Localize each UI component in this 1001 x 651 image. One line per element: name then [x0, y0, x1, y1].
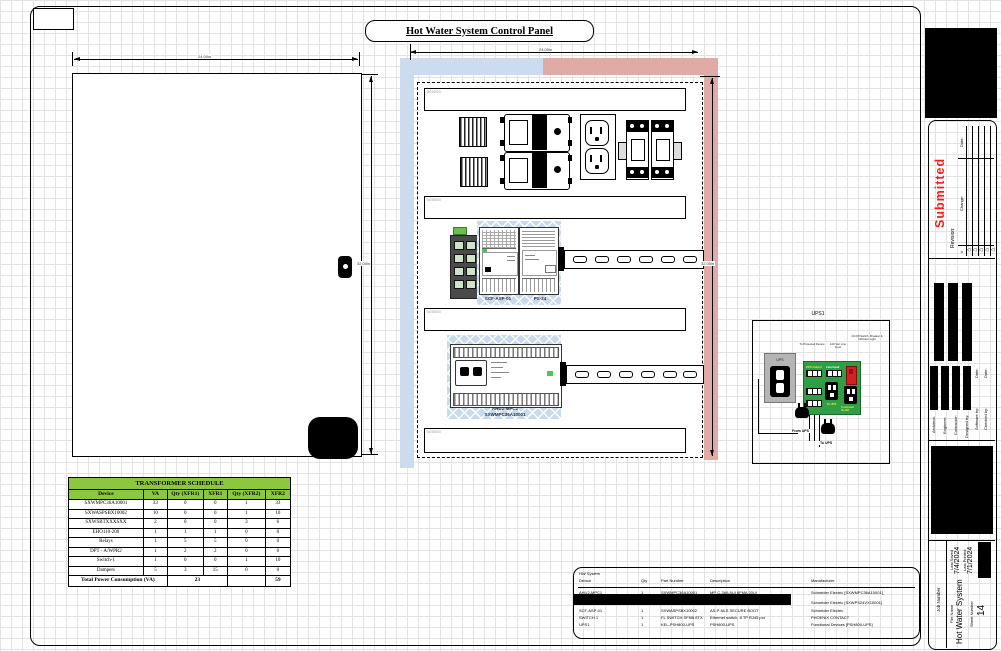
date-label: Date:	[974, 366, 981, 380]
outlet-slot	[828, 385, 832, 390]
cell: 15	[203, 566, 227, 576]
cell: 2	[203, 547, 227, 557]
redaction-bar	[930, 366, 938, 410]
total-label: Total Power Consumption (VA)	[69, 576, 168, 586]
breaker-pole	[651, 120, 674, 180]
outlet-ground	[595, 137, 599, 141]
breaker-screw	[655, 170, 659, 174]
board-computer-outlet	[844, 386, 857, 404]
device-marking	[507, 260, 515, 261]
device-terminal-block	[482, 278, 516, 292]
table-row: Dampers531500	[69, 566, 291, 576]
contractor-label: Contractor:	[953, 412, 960, 438]
cell: 2	[143, 519, 167, 529]
device-marking	[491, 377, 501, 378]
breaker-screw	[665, 124, 669, 128]
dimension-arrow-icon	[410, 50, 416, 54]
redaction-bar	[962, 283, 972, 361]
bom-col-qty: Qty	[641, 579, 661, 584]
transformer-label-plate	[509, 158, 528, 183]
redaction-bar	[934, 283, 944, 361]
breaker-terminal-bottom	[652, 167, 673, 178]
wireway-duct: 000000	[424, 196, 686, 219]
bom-cell: 1	[641, 609, 661, 614]
breaker-pole	[626, 120, 649, 180]
bom-cell: UPS1	[579, 623, 641, 628]
cell: 5	[167, 538, 203, 548]
breaker-screw	[665, 170, 669, 174]
cell: Dampers	[69, 566, 144, 576]
outlet-socket-icon	[776, 370, 784, 380]
bom-cell: AS-P-NLS SECURE BOOT	[710, 609, 811, 614]
revision-grid-line	[972, 126, 973, 256]
breaker-screw	[640, 170, 644, 174]
ups-unit: UPS	[764, 353, 796, 403]
mount-tab	[500, 178, 504, 184]
controller-terminal-strip-top	[453, 347, 559, 358]
transformer-core-band	[532, 152, 547, 188]
schedule-title: TRANSFORMER SCHEDULE	[69, 478, 291, 490]
transformer-terminal-dot	[554, 166, 561, 173]
switch-rocker	[849, 369, 854, 374]
redaction-bar	[978, 542, 991, 578]
din-rail-slot	[575, 371, 589, 378]
power-supply	[519, 227, 559, 295]
checked-by-label: Checked by:	[983, 400, 990, 438]
circuit-breakers	[625, 120, 673, 178]
date-label: Date:	[983, 366, 990, 380]
cell: 6	[265, 519, 290, 529]
bom-cell: Ethernet switch, 8 TP RJ45 por	[710, 616, 811, 621]
drawing-sheet: { "page_title": "Hot Water System Contro…	[0, 0, 1001, 651]
controller-display-module	[455, 360, 487, 386]
plug-icon	[821, 423, 835, 435]
bom-col-desc: Description	[710, 579, 811, 584]
cell: 3	[167, 566, 203, 576]
device-marking	[491, 362, 507, 363]
board-ups-output-label: UPS Output	[806, 365, 822, 369]
controller-knob	[460, 367, 469, 376]
cell: 33	[265, 500, 290, 510]
dimension-ext-line	[362, 74, 378, 75]
dimension-arrow-icon	[369, 76, 373, 82]
table-row: SXWSBTXXXSXX20036	[69, 519, 291, 529]
board-terminal-block	[826, 370, 842, 377]
din-rail-slot	[683, 256, 697, 263]
ups-detail-title: UPS1	[790, 309, 846, 318]
cell: 0	[167, 509, 203, 519]
ethernet-switch	[450, 235, 478, 299]
din-rail-slot	[595, 256, 609, 263]
table-row: UPS11KEL-PSH800-UPSPSH800-UPSFunctional …	[574, 621, 919, 629]
revision-delta-icon: ◁	[973, 247, 977, 253]
mount-tab	[500, 155, 504, 161]
breaker-screw	[630, 170, 634, 174]
bom-header-row: Device Qty Part Number Description Manuf…	[574, 577, 919, 585]
outlet-slot	[590, 155, 592, 162]
note-switch-breaker: On/Off Switch, Breaker & Indicator Light	[847, 335, 887, 341]
cell: 5	[143, 566, 167, 576]
outlet-slot	[852, 389, 856, 394]
device-port	[485, 267, 491, 272]
table-row: DPT - A/WPR212200	[69, 547, 291, 557]
device-marking	[525, 259, 539, 260]
dimension-ext-line	[359, 52, 360, 66]
designed-by-label: Designed by:	[964, 412, 971, 440]
outlet-slot	[833, 385, 837, 390]
cell: 0	[265, 547, 290, 557]
outlet-ground	[849, 397, 853, 401]
bom-system-label: HW System	[579, 571, 600, 576]
wireway-label: 000000	[427, 310, 441, 314]
dimension-arrow-icon	[710, 78, 714, 84]
cell: 0	[265, 566, 290, 576]
control-transformer	[504, 152, 568, 188]
wire-line	[758, 433, 798, 434]
bom-col-device: Device	[579, 579, 641, 584]
status-stamp: Submitted	[933, 135, 948, 250]
bom-cell: KEL-PSH800-UPS	[661, 623, 710, 628]
breaker-terminal-top	[627, 121, 648, 132]
wire-line	[814, 413, 815, 441]
breaker-terminal-bottom	[627, 167, 648, 178]
title-block-divider	[928, 440, 995, 441]
redaction-bar	[963, 366, 971, 410]
cell: 0	[227, 566, 265, 576]
outlet-socket-icon	[585, 120, 609, 146]
plug-icon	[795, 407, 809, 419]
cell: 2	[167, 547, 203, 557]
dimension-arrow-icon	[369, 448, 373, 454]
col-device: Device	[69, 490, 144, 500]
title-block-divider	[946, 540, 947, 648]
rev-hash-header: #	[959, 247, 966, 256]
board-to-ups-label: To UPS	[823, 401, 840, 406]
board-terminal-block	[806, 370, 822, 377]
wireway-label: 000000	[427, 198, 441, 202]
note-line-input: 120 Vac Line Input	[827, 343, 849, 349]
cell: 33	[143, 500, 167, 510]
wire-line	[758, 379, 759, 433]
enclosure-door-view	[72, 73, 362, 457]
mount-tab	[568, 117, 572, 123]
redaction-bar	[948, 283, 958, 361]
sheet-number-label: Sheet Number	[969, 582, 975, 646]
cell: 1	[167, 528, 203, 538]
outlet-slot	[590, 127, 592, 134]
switch-port-grid	[454, 241, 475, 289]
job-number-label: Job Number	[936, 558, 944, 642]
brand-mark	[482, 249, 487, 252]
col-xfr1: XFR1	[203, 490, 227, 500]
title-block-divider	[928, 258, 995, 259]
highlight-band-pink	[543, 58, 718, 75]
bom-cell: Schneider Electric [SXWMPC36A10001]	[811, 591, 914, 596]
cell: 1	[203, 528, 227, 538]
cell: 0	[203, 557, 227, 567]
control-transformer	[504, 114, 568, 150]
dimension-arrow-icon	[692, 50, 698, 54]
mount-tab	[568, 155, 572, 161]
schedule-header-row: Device VA Qty (XFR1) XFR1 Qty (XFR2) XFR…	[69, 490, 291, 500]
cell: 0	[203, 509, 227, 519]
cell: 10	[143, 509, 167, 519]
wireway-label: 000000	[427, 430, 441, 434]
board-terminal-block	[806, 400, 822, 407]
breaker-terminal-top	[652, 121, 673, 132]
revision-grid-line	[978, 126, 979, 256]
dimension-line-panel-width	[410, 52, 698, 53]
device-face	[482, 252, 518, 276]
ups-relay-board: UPS Output Line Input To UPS Computer Ou…	[803, 361, 861, 415]
ethernet-port-icon	[466, 241, 476, 250]
relay-socket	[459, 117, 487, 147]
controller-part-label: SXWMPC36A10001	[450, 411, 560, 418]
bom-cell: 1	[641, 623, 661, 628]
bom-cell: SCF-ASP-01	[579, 609, 641, 614]
redaction-logo-box	[925, 28, 997, 118]
total-xfr2: 59	[265, 576, 290, 586]
cell: SXWMPC36A10001	[69, 500, 144, 510]
breaker-screw	[655, 124, 659, 128]
revision-label: Revision:	[950, 220, 958, 256]
redaction-bar	[941, 366, 949, 410]
device-face	[522, 250, 557, 276]
cell: SXWASPSBX10002	[69, 509, 144, 519]
outlet-slot	[600, 127, 602, 134]
mount-tab	[500, 140, 504, 146]
cell: Switch-1	[69, 557, 144, 567]
mount-tab	[568, 178, 572, 184]
revision-grid-line	[984, 126, 985, 256]
cell: SXWSBTXXXSXX	[69, 519, 144, 529]
mpc-controller	[450, 344, 562, 408]
architect-label: Architect:	[931, 412, 938, 438]
bom-cell: Functional Devices [PSH800-UPS]	[811, 623, 914, 628]
cell: 1	[227, 509, 265, 519]
cell: 0	[265, 528, 290, 538]
controller-knob	[473, 367, 482, 376]
bom-cell: FL SWITCH SFNB 8TX	[661, 616, 710, 621]
din-rail-slot	[683, 371, 697, 378]
panel-width-label: 24.00in	[538, 47, 553, 52]
bom-col-part: Part Number	[661, 579, 710, 584]
ups-outlet-plate	[770, 366, 790, 397]
cell: 0	[227, 538, 265, 548]
breaker-wing-tab	[673, 142, 682, 160]
din-rail-slot	[597, 371, 611, 378]
device-port	[545, 265, 556, 273]
bom-header-rule	[578, 587, 915, 588]
cell: 3	[227, 519, 265, 529]
din-rail-slot	[619, 371, 633, 378]
board-computer-outlet-label: Computer Outlet	[841, 405, 860, 413]
as-p-controller	[479, 227, 519, 295]
bom-col-mfr: Manufacturer	[811, 579, 914, 584]
bom-cell: PSH800-UPS	[710, 623, 811, 628]
cell: Relays	[69, 538, 144, 548]
cell: 1	[227, 557, 265, 567]
table-row: SXWASPSBX100021000110	[69, 509, 291, 519]
din-rail	[564, 250, 704, 269]
transformer-core-band	[532, 114, 547, 150]
outlet-socket-icon	[585, 148, 609, 174]
total-xfr1: 23	[167, 576, 227, 586]
bom-cell: Schneider Electric	[811, 609, 914, 614]
dimension-ext-line	[72, 52, 73, 66]
door-handle-icon	[338, 256, 352, 278]
revision-delta-icon: ◁	[967, 247, 971, 253]
device-terminal-block	[482, 230, 516, 249]
cell: 1	[143, 528, 167, 538]
cord-to-ups-label: To UPS	[819, 441, 833, 445]
cell: 1	[143, 538, 167, 548]
dimension-ext-line	[362, 454, 378, 455]
dimension-line-door-height	[371, 76, 372, 454]
col-qty-xfr1: Qty (XFR1)	[167, 490, 203, 500]
revision-grid-line	[958, 158, 994, 159]
brand-mark	[547, 371, 553, 376]
door-handle-keyhole	[343, 264, 348, 269]
cord-from-ups-label: From UPS	[791, 429, 810, 433]
total-qty-xfr2-blank	[227, 576, 265, 586]
ethernet-port-icon	[454, 241, 464, 250]
table-row: SXWMPC36A100013300133	[69, 500, 291, 510]
revision-delta-icon: ◁	[991, 247, 995, 253]
bom-cell: PHOENIX CONTACT	[811, 616, 914, 621]
bom-cell: 1	[641, 616, 661, 621]
mount-tab	[568, 140, 572, 146]
cell: 0	[167, 519, 203, 529]
engineer-label: Engineer:	[942, 412, 949, 438]
bom-cell: SXWASPSBX10002	[661, 609, 710, 614]
dimension-ext-line	[700, 76, 720, 77]
relay-socket	[460, 157, 488, 187]
schedule-total-row: Total Power Consumption (VA) 23 59	[69, 576, 291, 586]
col-qty-xfr2: Qty (XFR2)	[227, 490, 265, 500]
outlet-ground	[595, 165, 599, 169]
revision-grid-line	[958, 245, 994, 246]
device-vent	[522, 230, 555, 247]
wireway-label: 000000	[427, 90, 441, 94]
breaker-toggle	[656, 139, 670, 161]
highlight-band-pink	[704, 58, 718, 460]
cell: 10	[265, 557, 290, 567]
bom-cell: Schneider Electric [SXWPS24VX10001]	[811, 601, 914, 606]
board-outlet-to-ups	[825, 382, 838, 400]
transformer-schedule-table: TRANSFORMER SCHEDULE Device VA Qty (XFR1…	[68, 477, 291, 587]
outlet-slot	[847, 389, 851, 394]
wireway-duct: 000000	[424, 308, 686, 331]
breaker-screw	[640, 124, 644, 128]
schedule-title-row: TRANSFORMER SCHEDULE	[69, 478, 291, 490]
din-rail	[566, 365, 704, 384]
ethernet-port-icon	[454, 267, 464, 276]
redaction-bar	[574, 594, 791, 605]
ethernet-port-icon	[466, 280, 476, 289]
panel-height-label: 32.00in	[700, 261, 715, 266]
highlight-band-blue	[400, 58, 414, 468]
cell: 0	[227, 547, 265, 557]
revision-grid-line	[966, 126, 967, 256]
transformer-terminal-dot	[554, 128, 561, 135]
cell: 5	[203, 538, 227, 548]
dimension-arrow-icon	[352, 57, 358, 61]
table-row: Relays15500	[69, 538, 291, 548]
din-rail-slot	[639, 256, 653, 263]
din-rail-slot	[641, 371, 655, 378]
din-rail-slot	[573, 256, 587, 263]
power-switch[interactable]	[846, 366, 857, 385]
device-marking	[491, 367, 503, 368]
redaction-blob	[308, 417, 358, 459]
transformer-label-plate	[509, 120, 528, 145]
frame-corner-box	[33, 8, 74, 30]
breaker-screw	[630, 124, 634, 128]
cell: 1	[227, 500, 265, 510]
note-protected-device: To Protected Device	[799, 343, 825, 346]
ethernet-port-icon	[466, 254, 476, 263]
din-rail-slot	[661, 256, 675, 263]
redaction-project-box	[931, 446, 993, 534]
cell: DPT - A/WPR2	[69, 547, 144, 557]
breaker-toggle	[631, 139, 645, 161]
dimension-arrow-icon	[74, 57, 80, 61]
ps-24-label: PS-24	[521, 294, 559, 303]
din-rail-slot	[617, 256, 631, 263]
wire-line	[809, 413, 810, 441]
cell: 0	[167, 557, 203, 567]
scf-asp-label: SCF-ASP-01	[477, 294, 519, 303]
bom-cell: SWITCH 1	[579, 616, 641, 621]
device-marking	[525, 255, 535, 256]
ethernet-port-icon	[454, 280, 464, 289]
table-row: EHO110-20011100	[69, 528, 291, 538]
device-marking	[507, 256, 515, 257]
switch-led-icon	[453, 227, 467, 235]
cell: 0	[227, 528, 265, 538]
door-width-label: 24.00in	[197, 54, 212, 59]
wireway-duct: 000000	[424, 428, 686, 453]
dimension-arrow-icon	[710, 450, 714, 456]
wireway-duct: 000000	[424, 88, 686, 111]
table-row: Switch-1100110	[69, 557, 291, 567]
duplex-outlet	[580, 114, 616, 180]
din-rail-slot	[663, 371, 677, 378]
mount-tab	[500, 117, 504, 123]
page-title: Hot Water System Control Panel	[406, 26, 553, 37]
rev-change-header: Change:	[959, 164, 966, 242]
cell: 0	[167, 500, 203, 510]
plug-body	[821, 423, 835, 434]
device-marking	[491, 372, 509, 373]
ups-detail-view: UPS To Protected Device 120 Vac Line Inp…	[752, 320, 890, 464]
file-name-value: Hot Water System	[955, 576, 966, 648]
ethernet-port-icon	[454, 254, 464, 263]
dimension-line-door-width	[74, 59, 358, 60]
plug-body	[795, 407, 809, 418]
outlet-ground	[830, 393, 834, 397]
last-printed-value: 7/1/2024	[967, 541, 976, 579]
cell: 10	[265, 509, 290, 519]
cell: 1	[143, 547, 167, 557]
outlet-slot	[600, 155, 602, 162]
board-line-input-label: Line Input	[826, 365, 839, 369]
outlet-socket-icon	[776, 383, 784, 393]
dimension-line-panel-height	[712, 78, 713, 456]
sheet-number-value: 14	[976, 594, 988, 626]
col-xfr2: XFR2	[265, 490, 290, 500]
